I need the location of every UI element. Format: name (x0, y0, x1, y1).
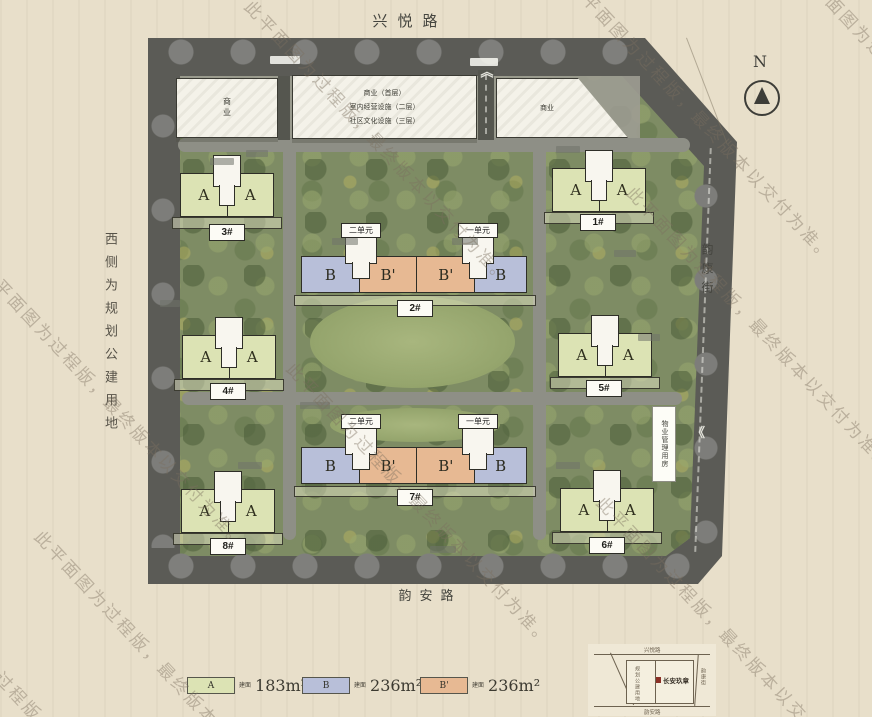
legend-item-a: A 建面 183m² (187, 676, 307, 695)
bus-stop-chip (470, 58, 498, 66)
site-plan: 商业 商业（首层） 室内经营设施（二层） 社区文化设施（三层） 商业 《 《 A… (0, 0, 872, 717)
building-2-core-east-notch (469, 262, 487, 279)
legend-swatch-a: A (187, 677, 235, 694)
building-5-core (591, 315, 619, 347)
entrance-chevron-right-icon: 《 (692, 422, 705, 441)
legend-item-b: B 建面 236m² (302, 676, 422, 695)
commercial-east-label: 商业 (540, 103, 554, 113)
commercial-center-line3: 社区文化设施（三层） (350, 116, 420, 126)
building-7-unit2-label: 二单元 (341, 414, 381, 429)
annotation-chip (638, 334, 660, 341)
watermark: 此平面图为过程版，最终版本以交付为准。 (0, 592, 199, 717)
minimap-project-name: 长安玖章 (663, 675, 689, 685)
service-lane-west (278, 76, 290, 140)
legend-prefix-text: 建面 (354, 683, 366, 689)
building-7: B B' B' B 二单元 一单元 (301, 447, 527, 484)
legend-area-bp: 236m² (488, 676, 540, 695)
minimap-road-top-label: 兴悦路 (644, 646, 661, 654)
building-7-label: 7# (397, 489, 433, 506)
internal-road-east (533, 140, 546, 540)
building-7-core-east-notch (469, 453, 487, 470)
minimap-project-label: 长安玖章 (656, 675, 689, 685)
annotation-chip (246, 150, 268, 157)
building-4-core-notch (221, 347, 237, 368)
annotation-chip (556, 462, 580, 469)
legend-prefix-text: 建面 (239, 683, 251, 689)
legend-area-b: 236m² (370, 676, 422, 695)
building-8-core (214, 471, 242, 503)
legend-prefix-text: 建面 (472, 683, 484, 689)
building-3-label: 3# (209, 224, 245, 241)
building-8-core-notch (220, 501, 236, 522)
minimap-road-bottom-label: 韵安路 (644, 708, 661, 716)
road-top-label: 兴悦路 (340, 10, 480, 31)
west-side-note: 西侧为规划公建用地 (101, 232, 120, 439)
location-minimap: 规划公建用地 长安玖章 兴悦路 韵安路 韵康街 (588, 644, 716, 716)
building-6-core-notch (599, 500, 615, 521)
building-6-label: 6# (589, 537, 625, 554)
legend-prefix: 建面 (239, 683, 251, 689)
building-2-label: 2# (397, 300, 433, 317)
annotation-chip (430, 546, 456, 553)
minimap-left-parcel-label: 规划公建用地 (634, 666, 641, 702)
minimap-road-bottom (594, 706, 710, 707)
legend-swatch-bp: B' (420, 677, 468, 694)
commercial-block-center: 商业（首层） 室内经营设施（二层） 社区文化设施（三层） (292, 75, 477, 139)
road-bottom-label: 韵安路 (350, 585, 510, 604)
commercial-west-label: 商业 (222, 97, 233, 119)
entrance-chevron-top-icon: 《 (478, 65, 497, 78)
compass-n-label: N (753, 52, 767, 71)
building-5-label: 5# (586, 380, 622, 397)
building-6-core (593, 470, 621, 502)
building-2: B B' B' B 二单元 一单元 (301, 256, 527, 293)
entrance-lane-dashes (485, 74, 487, 134)
building-4-core (215, 317, 243, 349)
bus-stop-chip (270, 56, 300, 64)
building-7-core-east (462, 427, 494, 455)
property-room: 物业管理用房 (652, 406, 676, 482)
commercial-center-line1: 商业（首层） (364, 88, 406, 98)
minimap-road-right (694, 654, 699, 706)
building-8-label: 8# (210, 538, 246, 555)
legend-swatch-b: B (302, 677, 350, 694)
building-5-core-notch (597, 345, 613, 366)
building-7-core-west-notch (352, 453, 370, 470)
legend-prefix: 建面 (472, 683, 484, 689)
building-1-core (585, 150, 613, 182)
annotation-chip (210, 158, 234, 165)
building-2-unit1-label: 一单元 (458, 223, 498, 238)
building-7-unit1-label: 一单元 (458, 414, 498, 429)
minimap-road-right-label: 韵康街 (700, 668, 707, 686)
annotation-chip (238, 462, 262, 469)
annotation-chip (300, 402, 330, 409)
annotation-chip (452, 238, 478, 245)
commercial-block-west: 商业 (176, 78, 278, 138)
commercial-center-line2: 室内经营设施（二层） (350, 102, 420, 112)
street-trees-top (150, 36, 642, 68)
annotation-chip (332, 238, 358, 245)
annotation-chip (160, 300, 180, 307)
watermark: 此平面图为过程版，最终版本以交付为准。 (794, 0, 872, 255)
north-arrow-icon (744, 80, 780, 116)
annotation-chip (614, 250, 636, 257)
building-1-core-notch (591, 180, 607, 201)
legend-prefix: 建面 (354, 683, 366, 689)
building-4-label: 4# (210, 383, 246, 400)
project-flag-icon (656, 677, 661, 683)
legend-item-bp: B' 建面 236m² (420, 676, 540, 695)
road-right-label: 韵康街 (699, 243, 716, 300)
north-arrow-triangle (754, 87, 770, 104)
building-7-core-west (345, 427, 377, 455)
internal-road-west (283, 140, 296, 540)
building-2-core-west-notch (352, 262, 370, 279)
street-trees-left (149, 86, 177, 548)
building-2-unit2-label: 二单元 (341, 223, 381, 238)
annotation-chip (556, 146, 580, 153)
legend-area-a: 183m² (255, 676, 307, 695)
building-1-label: 1# (580, 214, 616, 231)
building-3-core-notch (219, 185, 235, 206)
property-room-label: 物业管理用房 (659, 420, 669, 468)
